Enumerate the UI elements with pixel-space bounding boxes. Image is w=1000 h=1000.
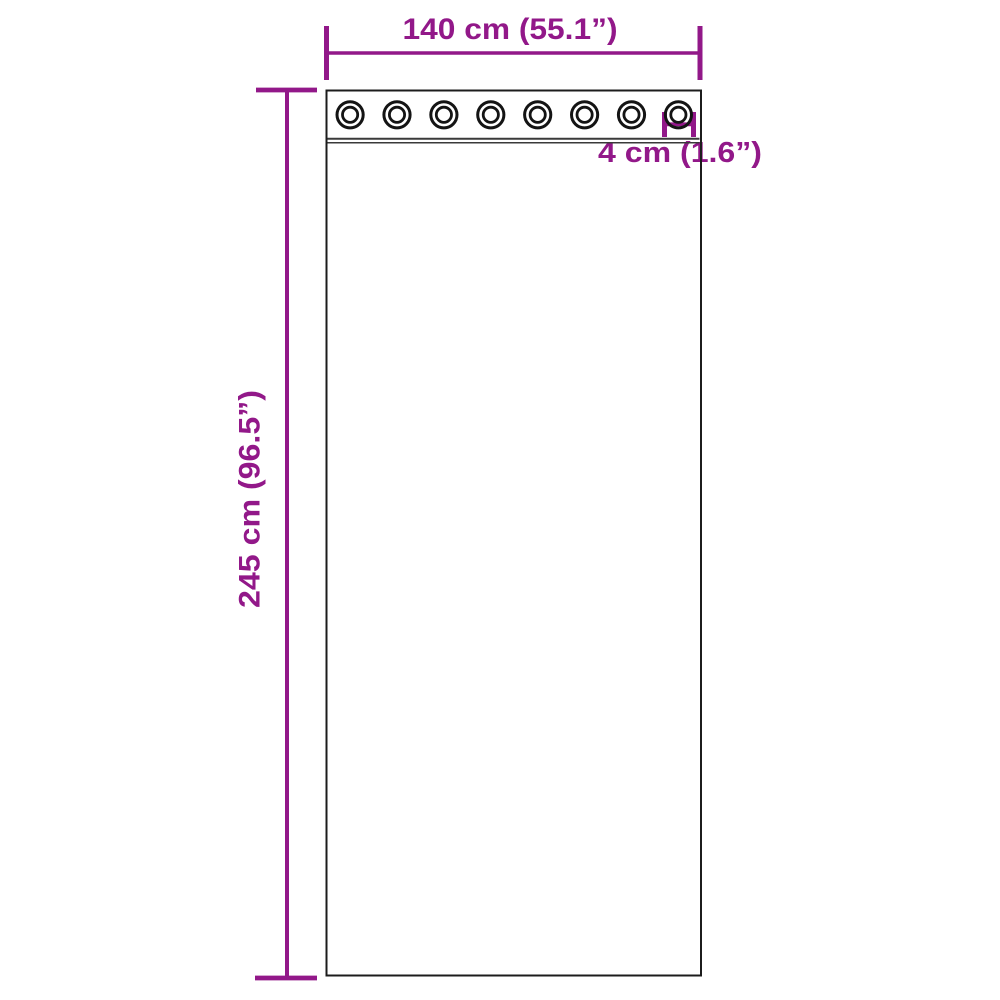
svg-text:4 cm (1.6”): 4 cm (1.6”) [598,137,762,169]
svg-text:245 cm (96.5”): 245 cm (96.5”) [234,390,267,608]
svg-text:140 cm (55.1”): 140 cm (55.1”) [403,13,618,46]
